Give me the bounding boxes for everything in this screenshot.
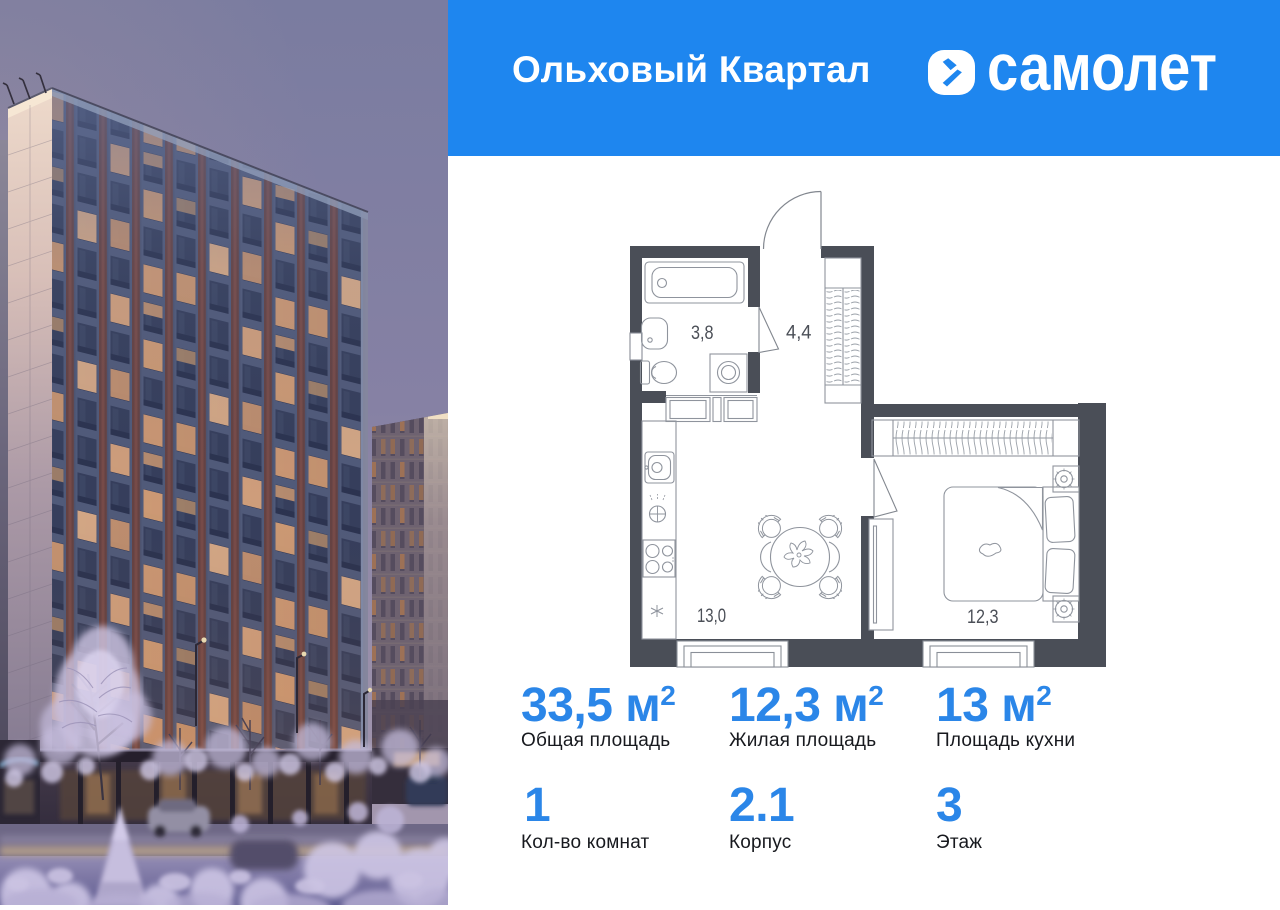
svg-text:13,0: 13,0 — [697, 605, 726, 627]
svg-text:4,4: 4,4 — [786, 322, 812, 344]
svg-text:самолет: самолет — [987, 50, 1217, 104]
svg-text:12,3: 12,3 — [967, 606, 999, 628]
svg-text:3,8: 3,8 — [691, 322, 714, 344]
